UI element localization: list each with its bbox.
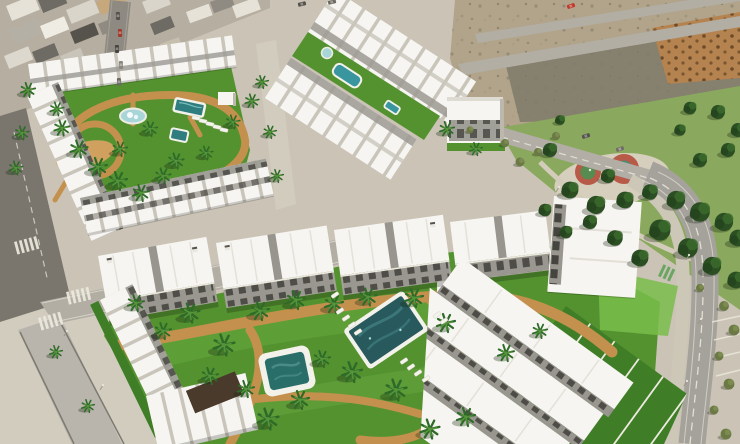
scene-canvas — [0, 0, 740, 444]
aerial-render-residential-development — [0, 0, 740, 444]
apartment-block — [334, 215, 453, 301]
upper-spa-pool — [170, 128, 189, 142]
corner-building — [447, 97, 505, 151]
garden-pond — [120, 109, 146, 124]
center-pond — [322, 48, 333, 59]
upper-pool-shed — [218, 92, 236, 106]
